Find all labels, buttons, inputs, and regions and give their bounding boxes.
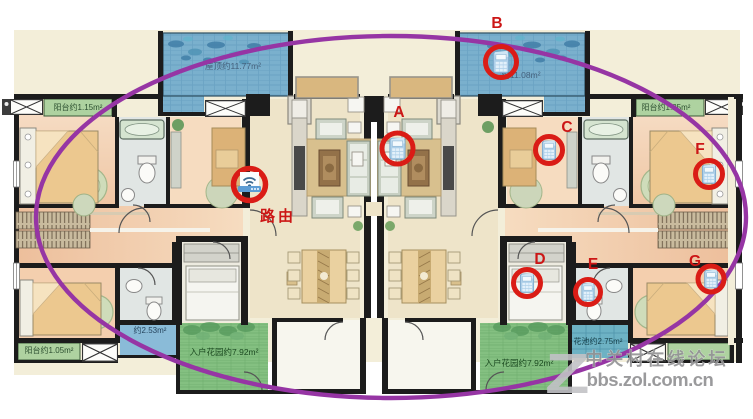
svg-text:约2.53m²: 约2.53m²	[134, 325, 167, 335]
svg-text:A: A	[393, 104, 404, 121]
svg-text:D: D	[534, 251, 545, 268]
svg-text:C: C	[561, 119, 572, 136]
svg-text:中关村在线论坛: 中关村在线论坛	[585, 349, 729, 369]
svg-text:B: B	[491, 15, 502, 32]
svg-text:阳台约1.15m²: 阳台约1.15m²	[54, 102, 103, 112]
svg-text:Z: Z	[545, 342, 590, 406]
svg-text:入户花园约7.92m²: 入户花园约7.92m²	[485, 358, 554, 368]
svg-text:阳台约1.05m²: 阳台约1.05m²	[25, 345, 74, 355]
svg-text:E: E	[588, 256, 598, 273]
svg-text:bbs.zol.com.cn: bbs.zol.com.cn	[587, 369, 714, 390]
svg-text:F: F	[695, 141, 704, 158]
svg-text:G: G	[689, 253, 701, 270]
svg-text:路由: 路由	[260, 207, 296, 225]
svg-text:入户花园约7.92m²: 入户花园约7.92m²	[190, 347, 259, 357]
